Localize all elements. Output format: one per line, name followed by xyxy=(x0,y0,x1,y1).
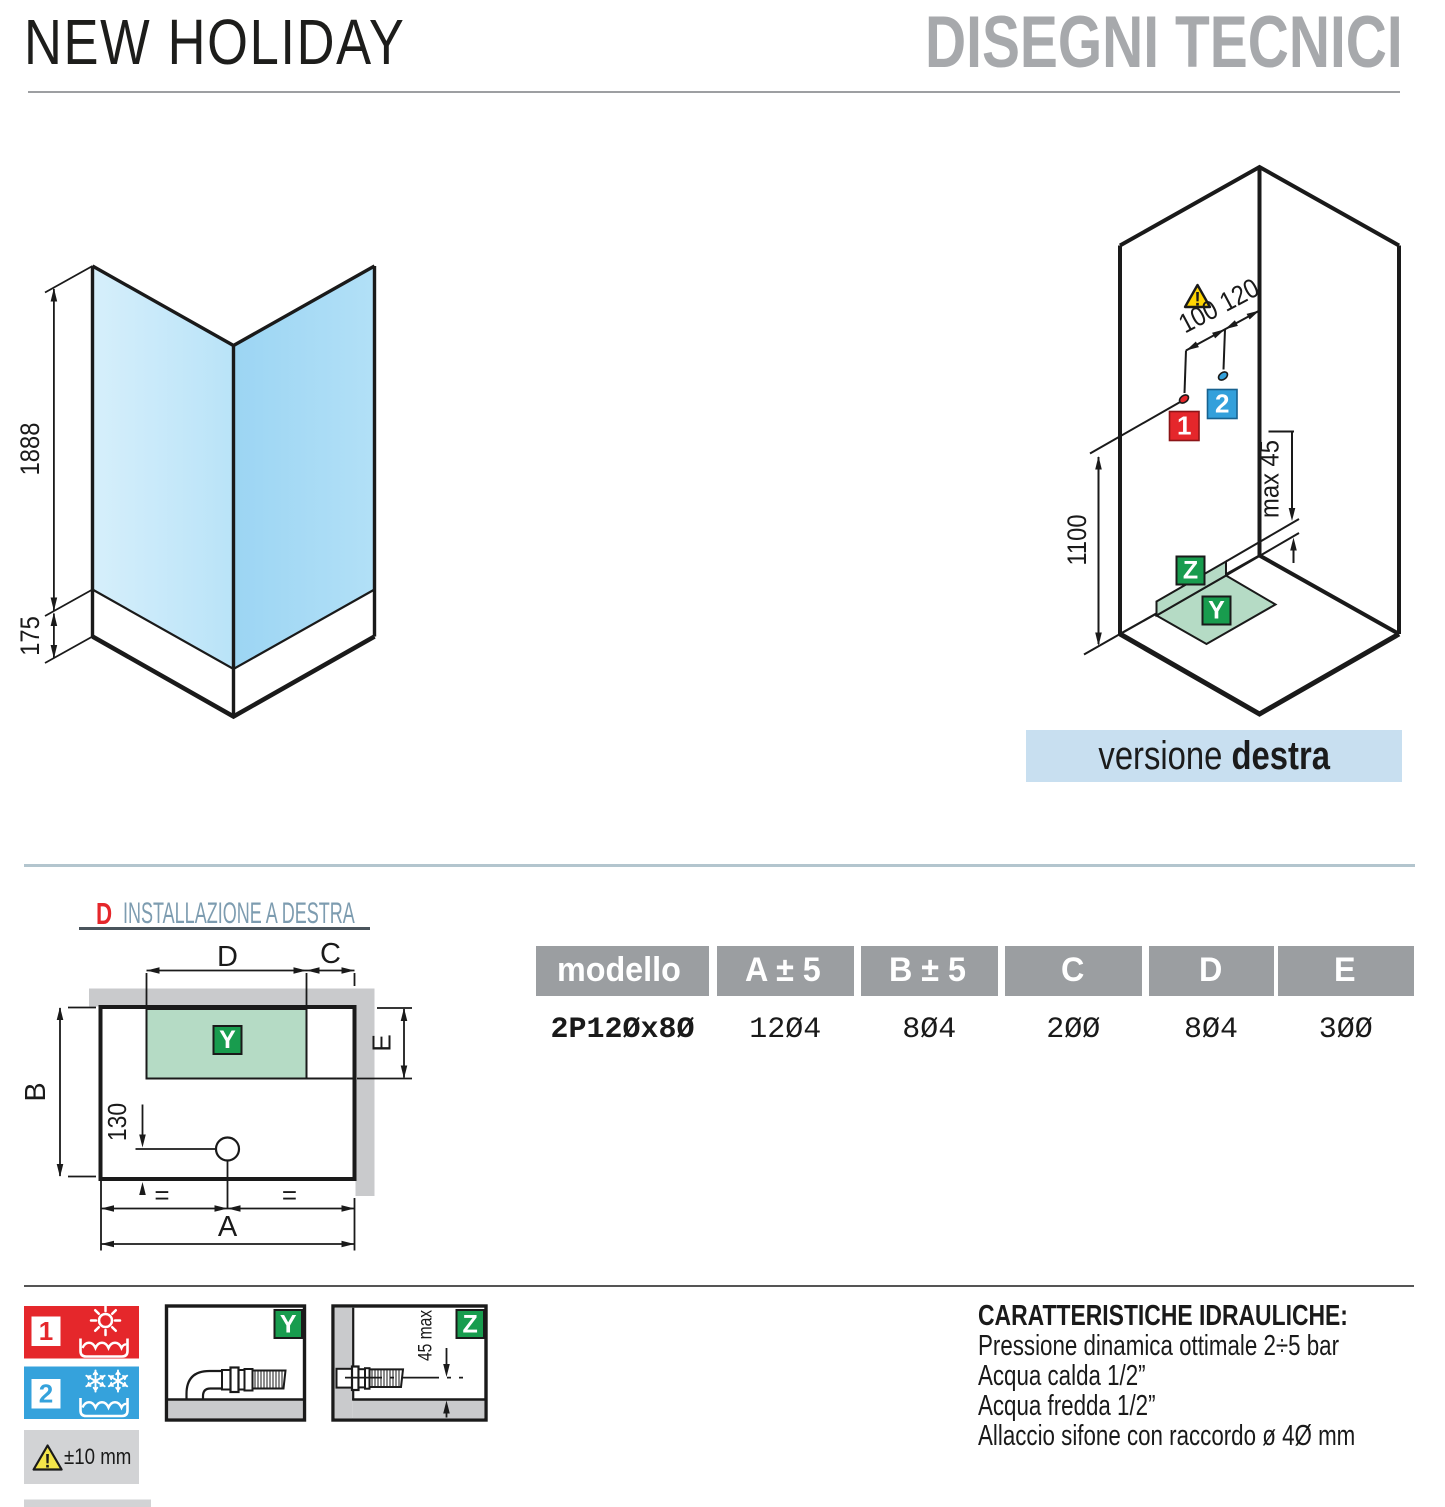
svg-text:±10 mm: ±10 mm xyxy=(64,1446,131,1470)
svg-text:B: B xyxy=(20,1082,52,1101)
svg-text:130: 130 xyxy=(104,1103,133,1141)
svg-text:=: = xyxy=(282,1180,297,1210)
svg-text:45 max: 45 max xyxy=(414,1310,436,1361)
svg-text:C: C xyxy=(320,938,341,970)
svg-text:Z: Z xyxy=(463,1311,478,1339)
svg-text:1100: 1100 xyxy=(1063,514,1093,565)
svg-text:175: 175 xyxy=(16,616,46,656)
svg-text:Y: Y xyxy=(219,1026,236,1054)
svg-text:1: 1 xyxy=(39,1316,53,1346)
svg-text:max 45: max 45 xyxy=(1255,440,1285,518)
svg-text:2: 2 xyxy=(1215,389,1229,419)
svg-text:Y: Y xyxy=(1208,597,1225,625)
svg-text:Z: Z xyxy=(1183,557,1198,585)
svg-text:!: ! xyxy=(44,1452,50,1473)
svg-text:2: 2 xyxy=(39,1379,53,1409)
svg-text:A: A xyxy=(218,1211,238,1243)
svg-text:1: 1 xyxy=(1177,411,1191,441)
svg-text:Y: Y xyxy=(280,1311,297,1339)
svg-text:D: D xyxy=(217,941,238,973)
svg-text:1888: 1888 xyxy=(16,423,46,476)
svg-text:E: E xyxy=(367,1034,397,1051)
svg-text:=: = xyxy=(154,1180,169,1210)
